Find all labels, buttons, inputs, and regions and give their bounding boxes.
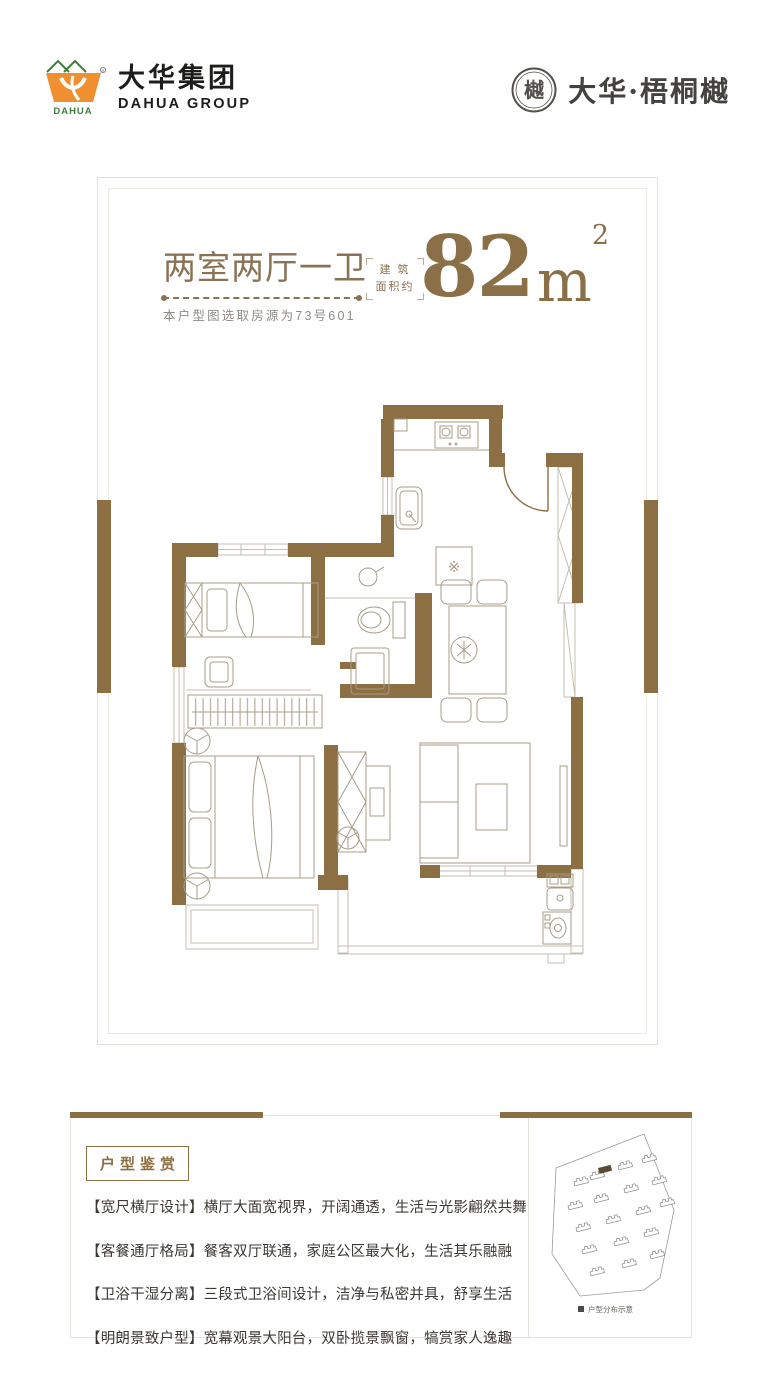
floorplan-poster: { "colors": { "wall_brown": "#8C7044", "…	[0, 0, 758, 1400]
pillow	[207, 589, 227, 631]
tv	[560, 766, 567, 846]
laundry-sink	[547, 888, 573, 910]
siteplan-thumbnail: 户型分布示意	[532, 1122, 688, 1332]
features-badge: 户型鉴赏	[86, 1146, 189, 1181]
feature-line: 【宽尺横厅设计】横厅大面宽视界，开阔通透，生活与光影翩然共舞	[86, 1196, 521, 1217]
accent-bar-right	[500, 1112, 692, 1118]
chair	[441, 698, 471, 722]
balcony	[543, 874, 573, 944]
bathroom	[351, 567, 405, 694]
double-bed	[184, 756, 314, 878]
furniture-group	[184, 419, 573, 944]
desk-nook	[337, 752, 390, 852]
dining-area	[441, 580, 507, 722]
kitchen	[394, 419, 489, 529]
fridge-symbol: ※	[448, 559, 461, 576]
feature-line: 【客餐通厅格局】餐客双厅联通，家庭公区最大化，生活其乐融融	[86, 1240, 521, 1261]
siteplan-legend: 户型分布示意	[588, 1304, 633, 1314]
single-bed	[202, 583, 318, 637]
svg-text:R: R	[102, 68, 105, 73]
features-list: 【宽尺横厅设计】横厅大面宽视界，开阔通透，生活与光影翩然共舞 【客餐通厅格局】餐…	[86, 1196, 521, 1370]
pillow	[189, 818, 211, 868]
toilet	[358, 607, 390, 633]
dahua-group-logo: R DAHUA 大华集团 DAHUA GROUP	[44, 58, 251, 118]
svg-text:樾: 樾	[524, 78, 545, 102]
brand-seal-icon: 樾	[510, 66, 558, 114]
brand-name-text: 大华·梧桐樾	[568, 70, 730, 110]
brand-logo: 樾 大华·梧桐樾	[510, 66, 730, 114]
floorplan-drawing: ※	[97, 177, 658, 1045]
kitchen-top-wall	[383, 405, 503, 419]
chair	[477, 698, 507, 722]
monitor	[370, 788, 384, 816]
accent-bar-left	[70, 1112, 263, 1118]
logo-cn-text: 大华集团	[118, 64, 251, 94]
logo-en-text: DAHUA GROUP	[118, 96, 251, 112]
highlighted-building	[598, 1165, 612, 1174]
legend-swatch	[578, 1306, 584, 1312]
toilet-tank	[393, 602, 405, 638]
feature-line: 【明朗景致户型】宽幕观景大阳台，双卧揽景飘窗，犒赏家人逸趣	[86, 1327, 521, 1348]
walls-group	[172, 405, 583, 905]
feature-line: 【卫浴干湿分离】三段式卫浴间设计，洁净与私密并具，舒享生活	[86, 1283, 521, 1304]
bedroom-2	[185, 583, 318, 687]
pillow	[189, 762, 211, 812]
master-bedroom	[184, 695, 322, 899]
washbasin	[359, 568, 377, 586]
dahua-logo-icon: R DAHUA	[44, 58, 106, 118]
entry-door	[504, 467, 548, 511]
living-room	[420, 743, 567, 863]
coffee-table	[476, 784, 507, 830]
svg-text:DAHUA: DAHUA	[53, 106, 92, 117]
chair	[441, 580, 471, 604]
chair	[477, 580, 507, 604]
rug	[420, 743, 530, 863]
